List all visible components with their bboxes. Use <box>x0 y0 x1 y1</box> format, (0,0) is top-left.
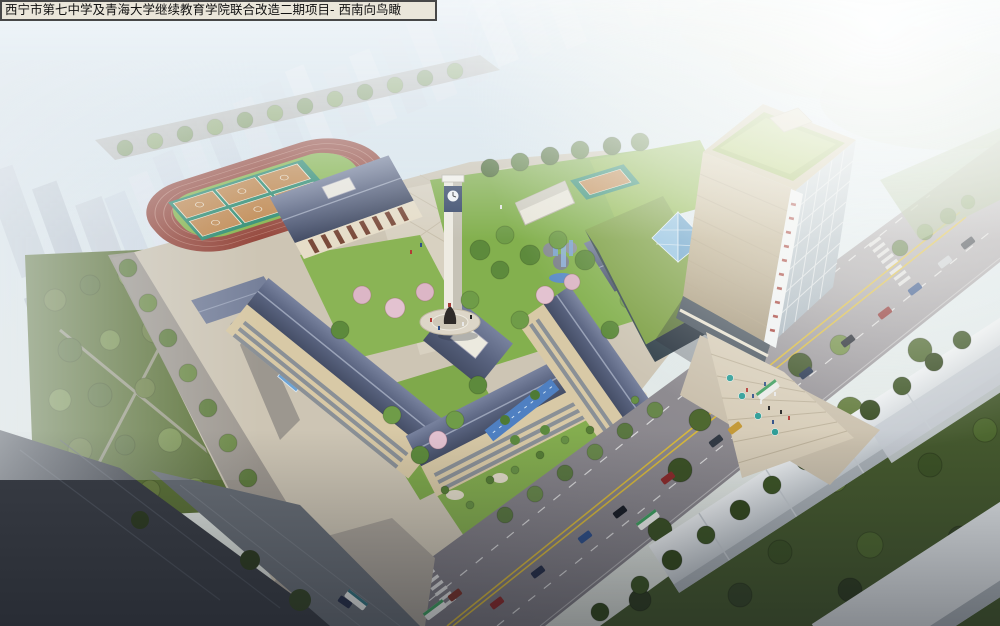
title-text: 西宁市第七中学及青海大学继续教育学院联合改造二期项目- 西南向鸟瞰 <box>5 4 401 17</box>
aerial-render <box>0 0 1000 626</box>
rendering-canvas: 西宁市第七中学及青海大学继续教育学院联合改造二期项目- 西南向鸟瞰 <box>0 0 1000 626</box>
bottom-vignette <box>0 430 1000 626</box>
title-box: 西宁市第七中学及青海大学继续教育学院联合改造二期项目- 西南向鸟瞰 <box>0 0 437 21</box>
